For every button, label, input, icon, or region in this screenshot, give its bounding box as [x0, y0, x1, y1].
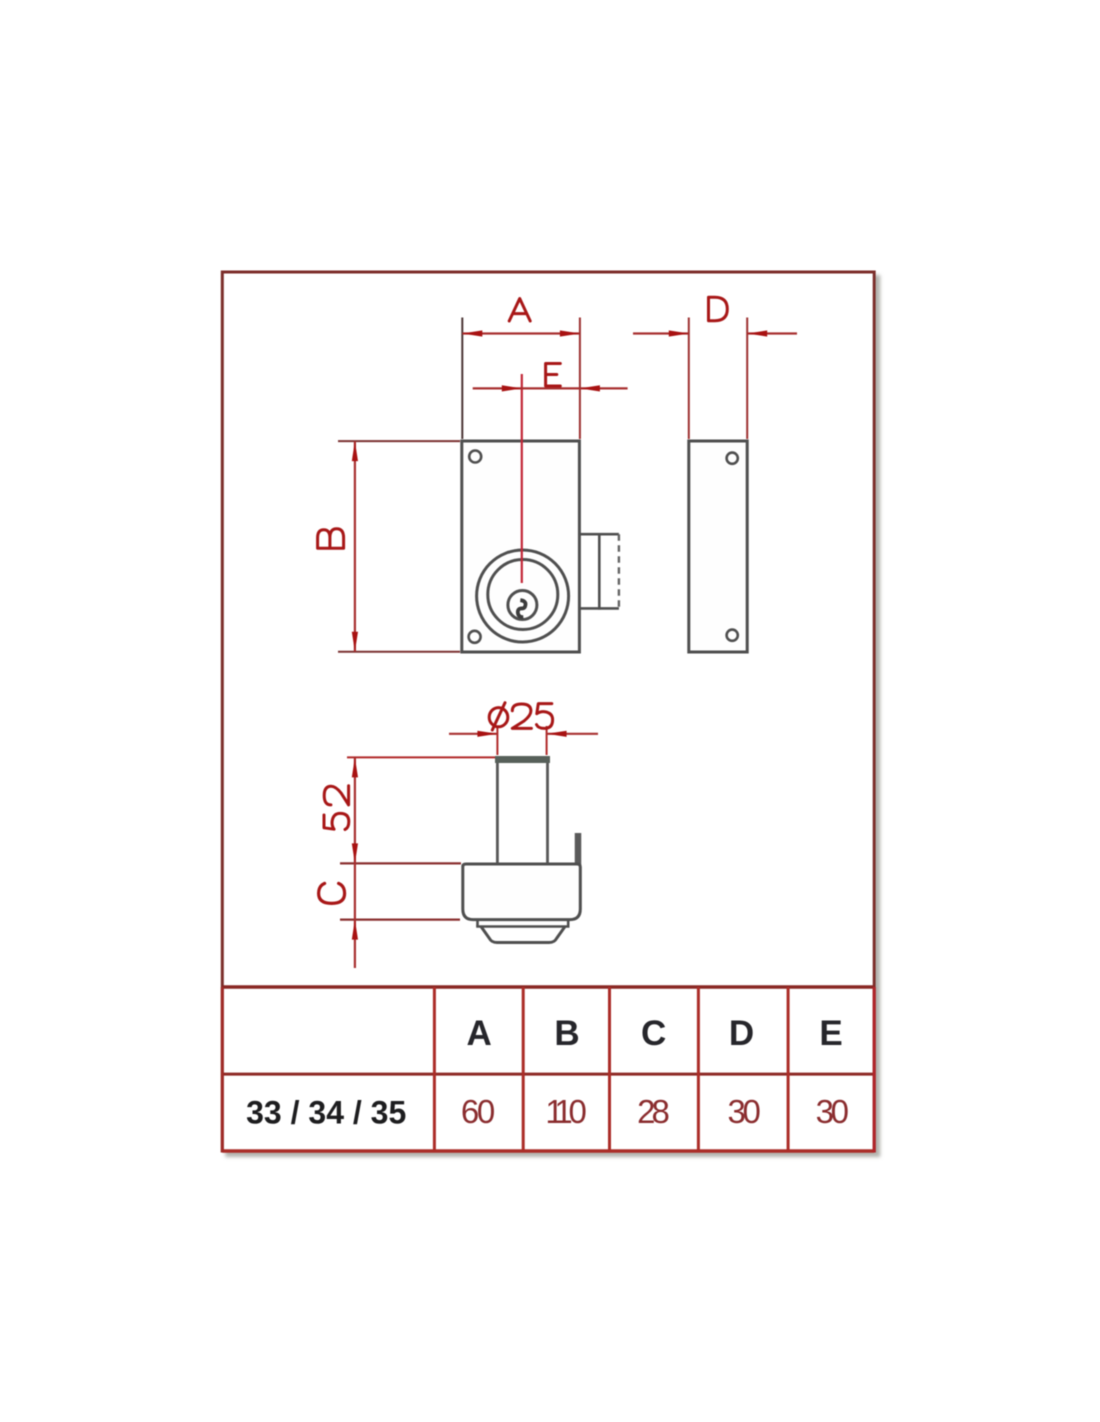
svg-text:0: 0: [743, 1093, 761, 1130]
svg-text:8: 8: [652, 1093, 670, 1130]
svg-text:A: A: [467, 1014, 492, 1053]
svg-text:0: 0: [477, 1093, 495, 1130]
svg-text:C: C: [641, 1014, 666, 1053]
svg-text:0: 0: [831, 1093, 849, 1130]
svg-text:B: B: [554, 1014, 579, 1053]
svg-text:E: E: [819, 1014, 842, 1053]
svg-text:0: 0: [569, 1093, 587, 1130]
svg-text:D: D: [729, 1014, 754, 1053]
svg-text:33 / 34 / 35: 33 / 34 / 35: [246, 1095, 406, 1131]
